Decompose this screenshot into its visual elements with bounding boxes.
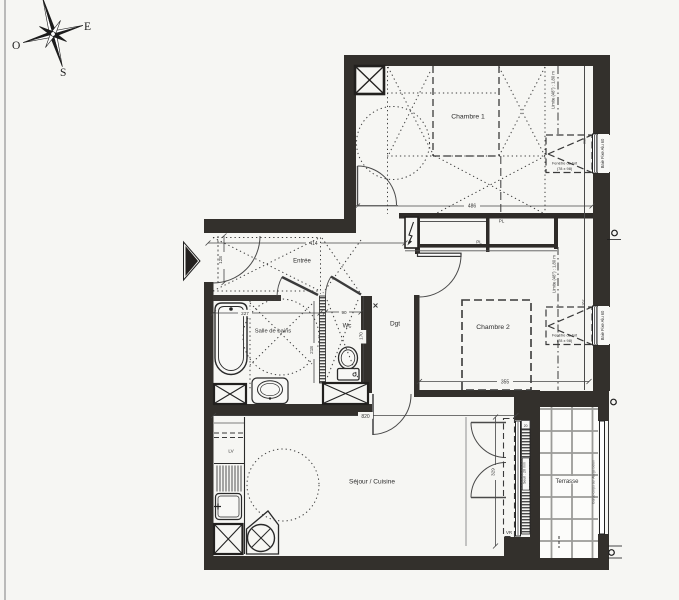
svg-text:Garde-corps sur Allège béton: Garde-corps sur Allège béton [592, 460, 596, 504]
svg-text:329: 329 [491, 468, 496, 476]
svg-text:Salle de bains: Salle de bains [255, 329, 292, 335]
svg-text:20: 20 [524, 424, 528, 428]
svg-text:362: 362 [582, 300, 586, 306]
svg-text:Terrasse: Terrasse [555, 479, 579, 485]
svg-text:486: 486 [468, 204, 477, 210]
svg-text:170: 170 [359, 332, 364, 340]
svg-text:820: 820 [361, 414, 370, 420]
svg-text:Fenêtre de toit: Fenêtre de toit [552, 333, 578, 338]
svg-text:O: O [12, 40, 20, 52]
svg-text:(78 x 98): (78 x 98) [557, 338, 573, 343]
svg-text:414: 414 [309, 241, 318, 247]
svg-text:Limite (48°) : 1,80 m: Limite (48°) : 1,80 m [551, 71, 556, 109]
svg-text:Chambre 1: Chambre 1 [451, 114, 485, 121]
svg-text:E: E [84, 21, 91, 33]
svg-text:128: 128 [218, 256, 223, 264]
svg-text:S: S [60, 67, 66, 79]
svg-text:PL: PL [499, 219, 505, 224]
svg-text:90: 90 [341, 310, 347, 315]
svg-text:Séjour / Cuisine: Séjour / Cuisine [349, 479, 395, 486]
svg-text:315: 315 [583, 138, 587, 144]
svg-text:Seuil : 20 mm: Seuil : 20 mm [523, 462, 527, 484]
svg-text:227: 227 [241, 311, 249, 316]
svg-text:Wc: Wc [343, 324, 352, 330]
svg-text:Baie Fixe Alu 60: Baie Fixe Alu 60 [600, 310, 605, 340]
svg-text:Limite (48°) : 1,80 m: Limite (48°) : 1,80 m [552, 255, 557, 293]
svg-text:355: 355 [501, 380, 510, 386]
svg-text:PL: PL [476, 240, 482, 245]
svg-text:Dgt: Dgt [390, 321, 400, 328]
svg-text:Fenêtre de toit: Fenêtre de toit [552, 161, 578, 166]
svg-text:(78 x 98): (78 x 98) [557, 166, 573, 171]
svg-text:Entrée: Entrée [293, 259, 311, 265]
svg-text:Chambre 2: Chambre 2 [476, 324, 510, 331]
svg-text:VR: VR [506, 530, 512, 535]
svg-text:218: 218 [309, 346, 314, 354]
svg-text:Baie Fixe Alu 60: Baie Fixe Alu 60 [600, 138, 605, 168]
